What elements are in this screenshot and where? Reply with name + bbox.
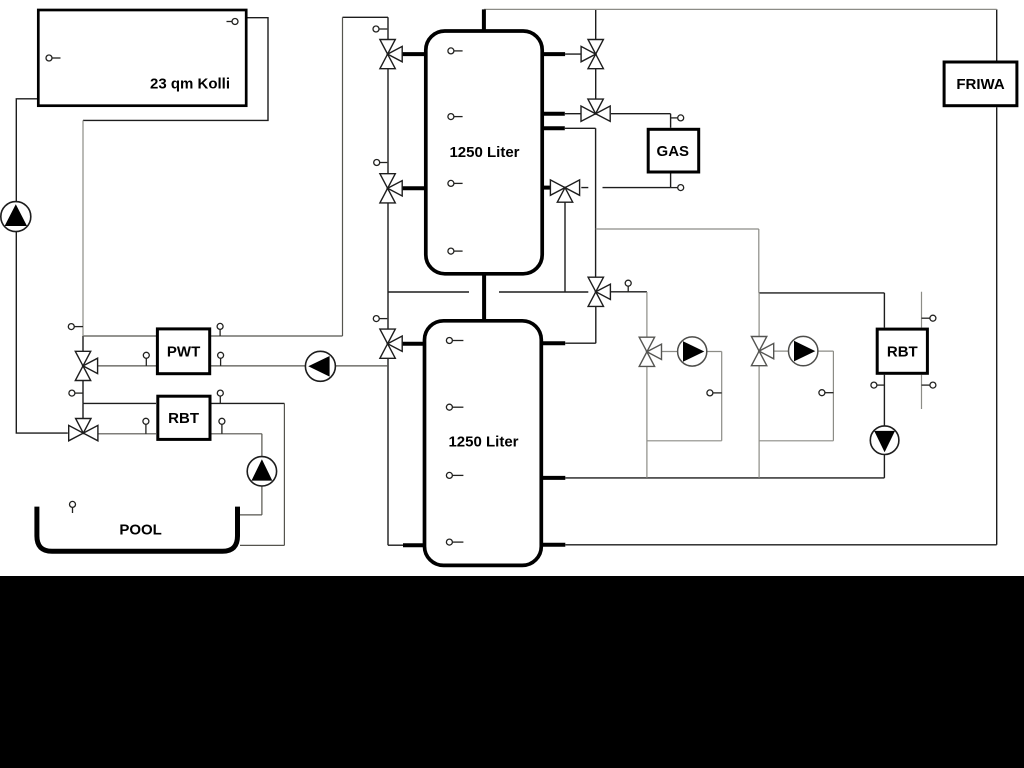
svg-text:FRIWA: FRIWA [956, 76, 1004, 93]
svg-text:PWT: PWT [167, 344, 200, 361]
svg-text:POOL: POOL [119, 522, 162, 539]
svg-text:1250 Liter: 1250 Liter [448, 434, 518, 451]
svg-text:1250 Liter: 1250 Liter [449, 144, 519, 161]
svg-text:GAS: GAS [657, 143, 690, 160]
svg-text:RBT: RBT [887, 344, 918, 361]
svg-text:RBT: RBT [168, 410, 199, 427]
svg-text:23 qm Kolli: 23 qm Kolli [150, 75, 230, 92]
